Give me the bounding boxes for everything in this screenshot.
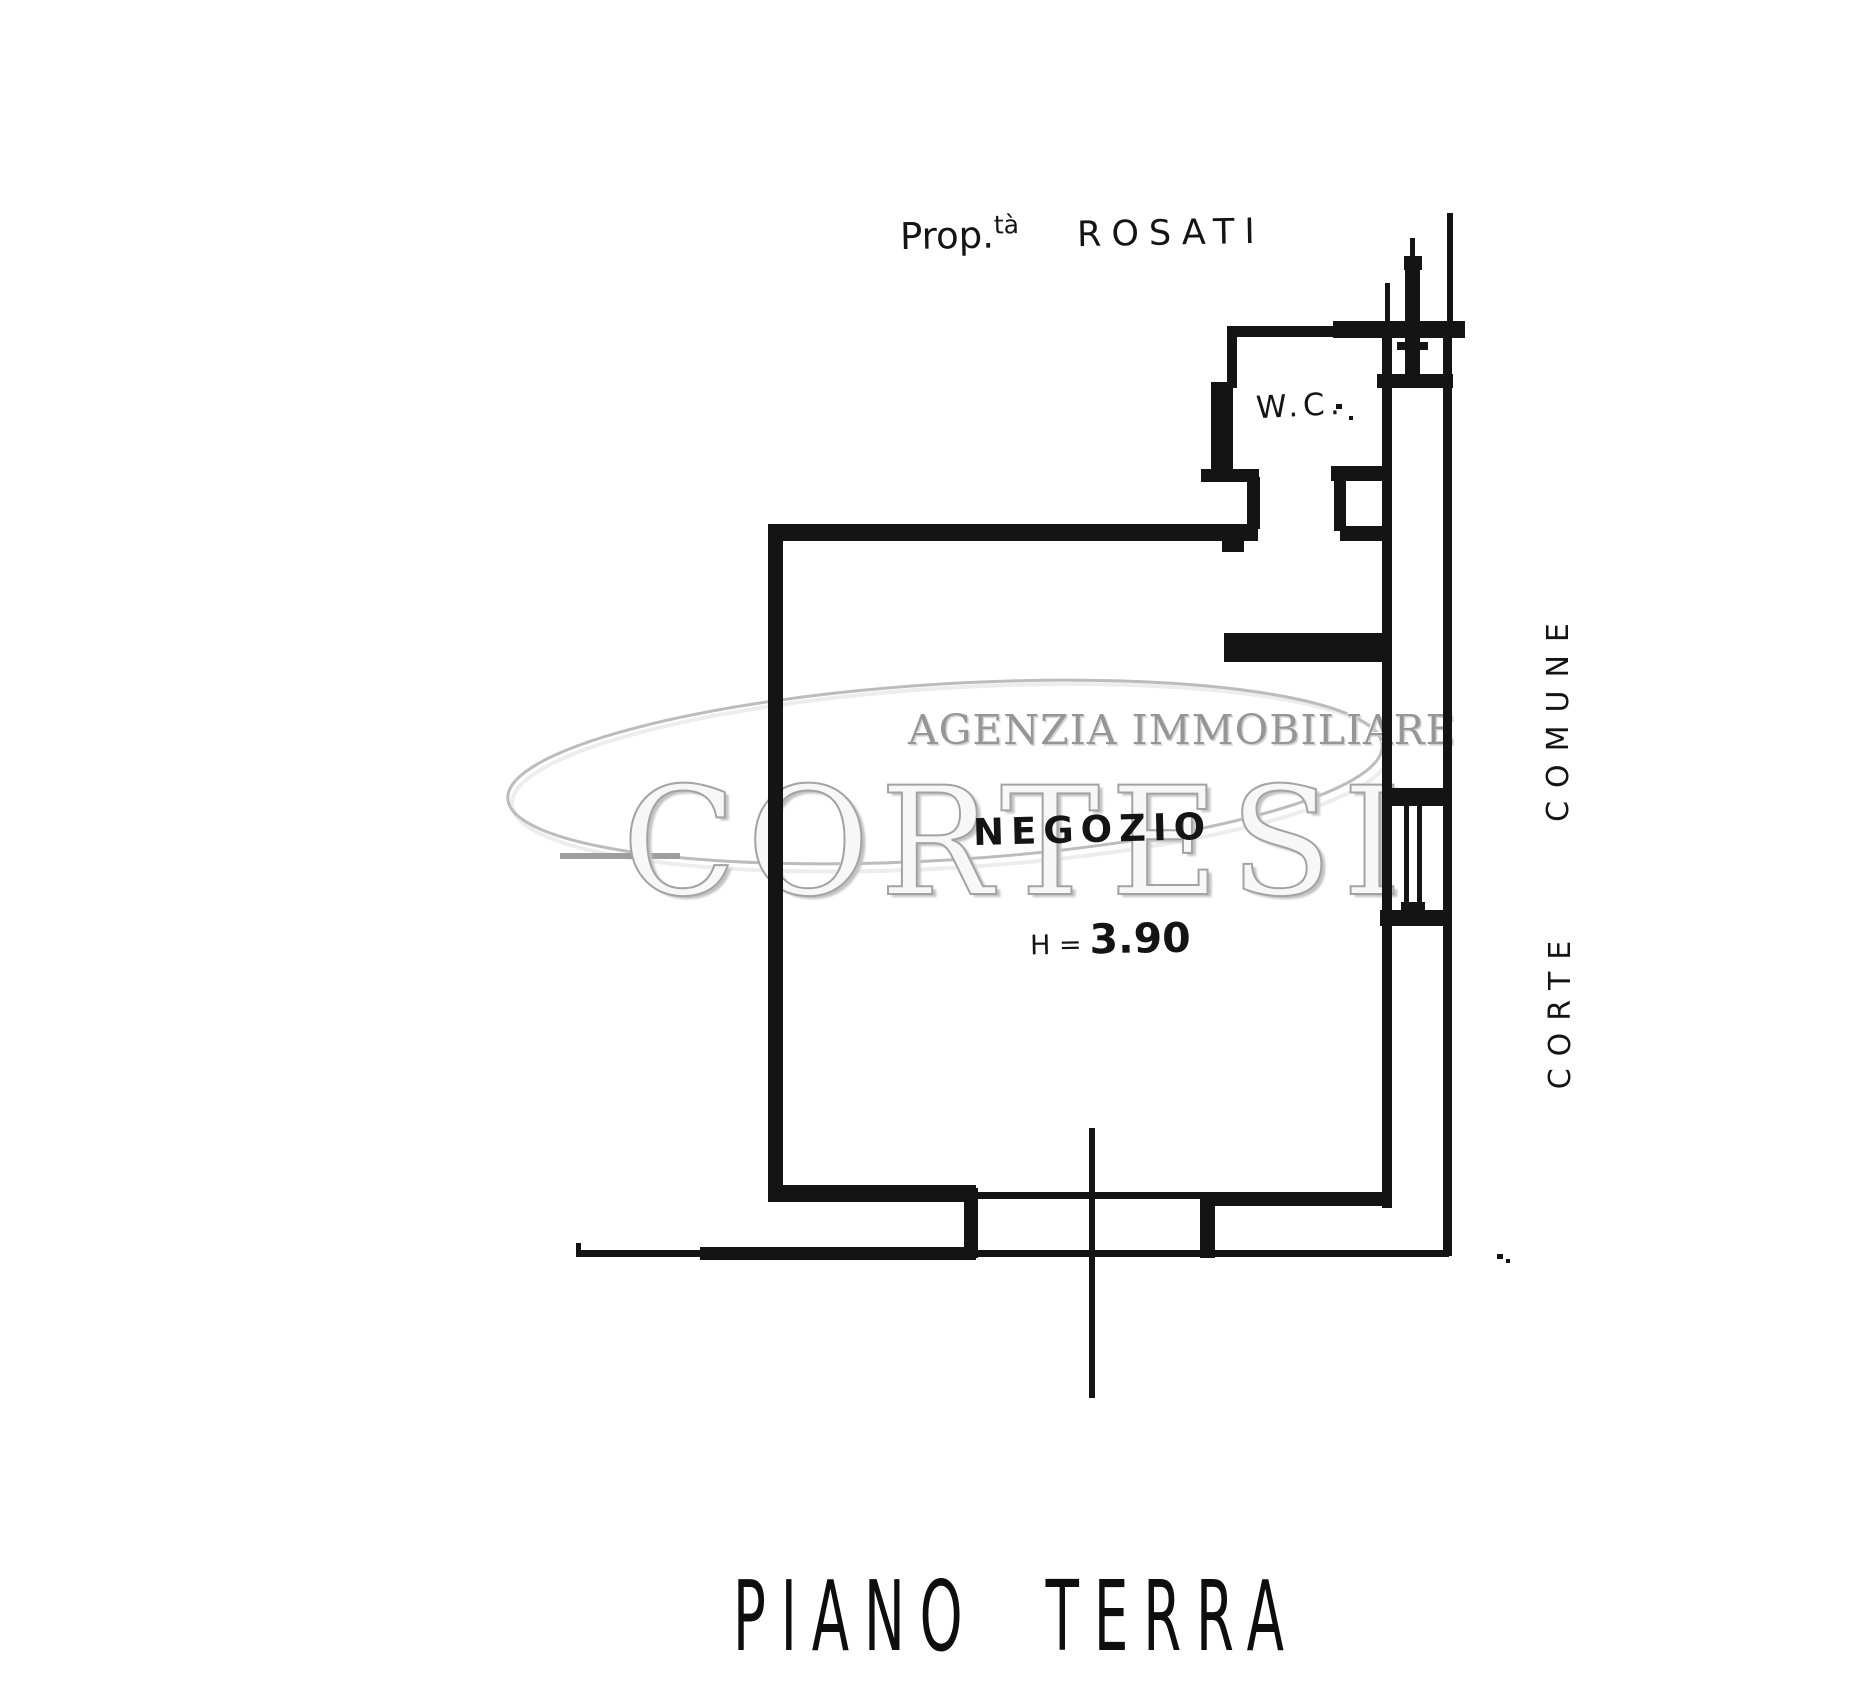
property-prefix: Prop. <box>900 214 995 259</box>
floorplan-scan-page: AGENZIA IMMOBILIARE CORTESI <box>0 0 1870 1683</box>
labels: Prop.tàROSATI W.C. NEGOZIO H =3.90 COMUN… <box>0 0 1870 1683</box>
property-owner-name: ROSATI <box>1077 212 1265 255</box>
property-label: Prop.tàROSATI <box>900 209 1265 258</box>
courtyard-label-comune: COMUNE <box>1542 596 1574 836</box>
shop-room-label: NEGOZIO <box>972 805 1212 854</box>
property-superscript: tà <box>994 210 1020 239</box>
height-prefix: H = <box>1030 930 1082 962</box>
wc-room-label: W.C. <box>1255 386 1345 427</box>
height-value: 3.90 <box>1089 914 1191 964</box>
floor-title: PIANO TERRA <box>733 1560 1299 1673</box>
ceiling-height-label: H =3.90 <box>1030 914 1192 965</box>
courtyard-label-corte: CORTE <box>1544 889 1576 1129</box>
